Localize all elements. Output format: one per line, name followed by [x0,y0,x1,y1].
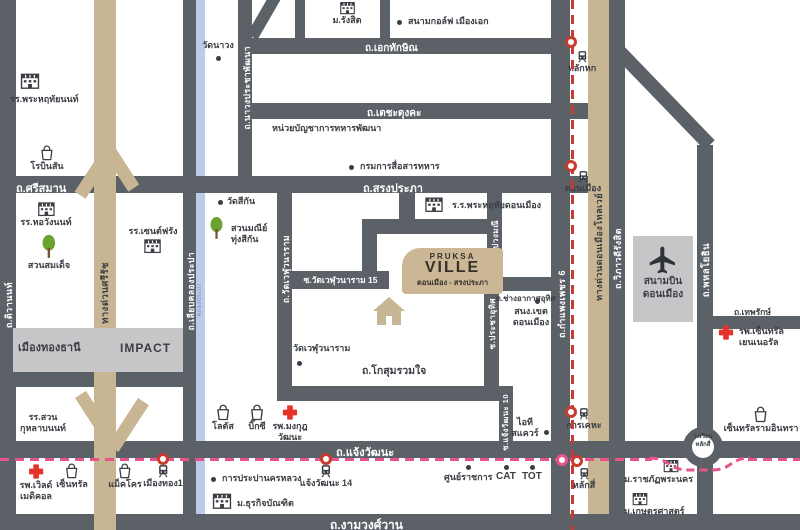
road-label-tollway: ทางด่วนดอนเมืองโทลเวย์ [592,193,606,301]
landmark-phrahruethai-dm-label: ร.ร.พระหฤทัยดอนเมือง [452,200,541,211]
station-lak-si: หลักสี่ [573,467,595,491]
train-icon [576,50,589,63]
road-label-kamphaeng-phet-6: ถ.กำแพงเพชร 6 [555,270,569,338]
mrt-pink-line [748,458,800,461]
soi-wat-weluwanaram-15-badge: ซ.วัดเวฬุวนาราม 15 [292,271,389,289]
road-estate-top [362,219,493,234]
landmark-dhurakij-icon [212,491,232,510]
project-name: VILLE [402,261,503,275]
landmark-lotus: โลตัส [212,403,234,432]
landmark-golf-muang-ek: สนามกอล์ฟ เมืองเอก [408,16,489,27]
shopping-bag-icon [752,405,770,423]
landmark-central-general-icon [718,324,735,341]
road-diagonal-stub [247,0,280,40]
road-label-phahonyothin: ถ.พหลโยธิน [699,243,714,297]
road-label-vibhavadi: ถ.วิภาวดีรังสิต [611,228,625,289]
landmark-robinson: โรบินสัน [30,144,63,172]
landmark-wat-sikan: วัดสีกัน [227,196,255,207]
landmark-phrahruethai-non [20,71,40,90]
hospital-cross-icon [27,463,44,480]
school-icon [144,237,162,254]
station-marker-lak-si-red [571,455,583,467]
hospital-cross-icon [718,324,735,341]
school-icon [339,0,355,15]
shopping-bag-icon [116,462,133,479]
landmark-big-c: บิ๊กซี [248,403,266,432]
poi-dot [544,430,549,435]
shopping-bag-icon [248,403,266,421]
landmark-gov-center: ศูนย์ราชการ [444,472,492,483]
laksi-roundabout-label: วงเวียน หลักสี่ [683,434,723,449]
airplane-icon [647,244,679,276]
road-rangsit-left [295,0,305,39]
poi-dot [535,299,540,304]
landmark-makro: แม็คโคร [108,462,141,490]
tree-icon [207,216,226,241]
poi-dot [504,465,509,470]
road-label-techa-tungka: ถ.เตชะตุงคะ [367,106,421,121]
shopping-bag-icon [64,462,81,479]
road-label-soi-chaengwattana-10: ซ.แจ้งวัฒนะ 10 [500,394,512,451]
station-marker-lak-si-pink [556,454,568,466]
landmark-suan-kulap: รร.สวน กุหลาบนนท์ [20,412,66,434]
road-label-wat-weluwanaram: ถ.วัดเวฬุวนาราม [279,235,293,303]
school-icon [20,71,40,90]
road-label-thepharak: ถ.เทพรักษ์ [734,305,771,319]
poi-dot [530,465,535,470]
school-icon [37,200,55,217]
landmark-wat-nawong: วัดนาวง [202,40,234,51]
station-marker-lak-hok [565,36,577,48]
train-icon [577,407,590,420]
station-marker-kan-kheha [565,406,577,418]
shopping-bag-icon [39,144,56,161]
canal-label: คลองประปา [196,283,204,317]
house-icon [371,295,407,327]
poi-dot [211,477,216,482]
road-label-ngamwongwan: ถ.งามวงศ์วาน [330,516,403,530]
shopping-bag-icon [214,403,232,421]
landmark-central-ramintra: เซ็นทรัลรามอินทรา [724,405,799,434]
don-mueang-airport-box: สนามบิน ดอนเมือง [633,236,693,322]
landmark-central-general-label: รพ.เซ็นทรัล เยนเนอรัล [739,326,784,348]
poi-dot [397,20,402,25]
landmark-suan-mani: สวนมณีย์ ทุ่งสีกัน [231,223,267,245]
train-icon [156,464,170,478]
landmark-saint-francis: รร.เซนต์ฟรัง [129,226,178,254]
school-icon [632,491,648,506]
train-icon [577,467,590,480]
poi-dot [349,165,354,170]
landmark-world-medical: รพ.เวิลด์ เมดิคอล [20,463,53,502]
road-phahonyothin-split [613,45,715,150]
location-map: ซ.วัดเวฬุวนาราม 15 PRUKSA VILLE ดอนเมือง… [0,0,800,530]
landmark-impact: IMPACT [120,341,171,355]
road-kosum-ruamchai [277,386,513,401]
road-label-tiwanon: ถ.ติวานนท์ [2,282,16,328]
landmark-central: เซ็นทรัล [56,462,88,490]
road-rangsit-right [380,0,390,39]
landmark-signal-department: กรมการสื่อสารทหาร [360,161,440,172]
landmark-cat: CAT [496,471,516,483]
poi-dot [218,200,223,205]
train-icon [577,170,590,183]
road-label-ek-thaksin: ถ.เอกทักษิณ [365,41,418,56]
landmark-kasetsart-icon [632,491,648,506]
landmark-it-square: ไอที สแควร์ [511,417,538,439]
road-label-soi-pracha-uthit: ซ.ประชาอุทิศ [486,298,499,349]
pruksa-ville-logo: PRUKSA VILLE ดอนเมือง - สรงประภา [402,248,503,294]
poi-dot [466,465,471,470]
road-label-nawong: ถ.นาวงประชาพัฒนา [240,46,254,129]
airport-label: สนามบิน ดอนเมือง [643,276,683,301]
school-icon [425,195,444,213]
station-marker-don-mueang [565,160,577,172]
hospital-cross-icon [282,404,299,421]
road-left-connector [0,371,183,387]
poi-dot [297,361,302,366]
landmark-kasetsart-label: ม.เกษตรศาสตร์ [624,506,685,517]
landmark-phrahruethai-non-label: รร.พระหฤทัยนนท์ [10,94,79,105]
landmark-rangsit-university: ม.รังสิต [333,0,362,26]
landmark-mongkut-wattana: รพ.มงกุฎ วัฒนะ [272,404,307,443]
road-label-song-prapha: ถ.สรงประภา [363,179,423,197]
srt-red-line [571,0,574,530]
road-label-si-rat: ทางด่วนศรีรัช [98,262,113,324]
road-label-chang-arkat-uthit: ถ.ช่างอากาศอุทิศ [496,292,556,305]
project-subtitle: ดอนเมือง - สรงประภา [402,277,503,289]
landmark-tot: TOT [522,471,542,483]
station-chaengwattana-14: แจ้งวัฒนะ 14 [300,464,352,489]
train-icon [319,464,333,478]
landmark-waterworks: การประปานครหลวง [222,473,301,484]
landmark-wat-weluwanaram: วัดเวฬุวนาราม [293,343,350,354]
landmark-dhurakij-label: ม.ธุรกิจบัณฑิต [237,498,294,509]
station-muang-thong-1: เมืองทอง1 [143,464,183,489]
landmark-district-office: สนง.เขต ดอนเมือง [513,306,549,328]
landmark-phrahruethai-dm-icon [425,195,444,213]
landmark-military-dev-command: หน่วยบัญชาการทหารพัฒนา [272,123,381,134]
landmark-muang-thong-thani: เมืองทองธานี [18,342,81,355]
landmark-suan-somdet: สวนสมเด็จ [28,234,70,271]
station-marker-chaengwattana-14 [320,453,332,465]
poi-dot [216,56,221,61]
school-icon [212,491,232,510]
tree-icon [39,234,59,260]
road-label-kosum-ruamchai: ถ.โกสุมรวมใจ [362,362,426,379]
station-marker-muang-thong-1 [157,453,169,465]
road-label-si-saman: ถ.ศรีสมาน [16,179,66,197]
landmark-horwang-non: รร.หอวังนนท์ [20,200,71,228]
